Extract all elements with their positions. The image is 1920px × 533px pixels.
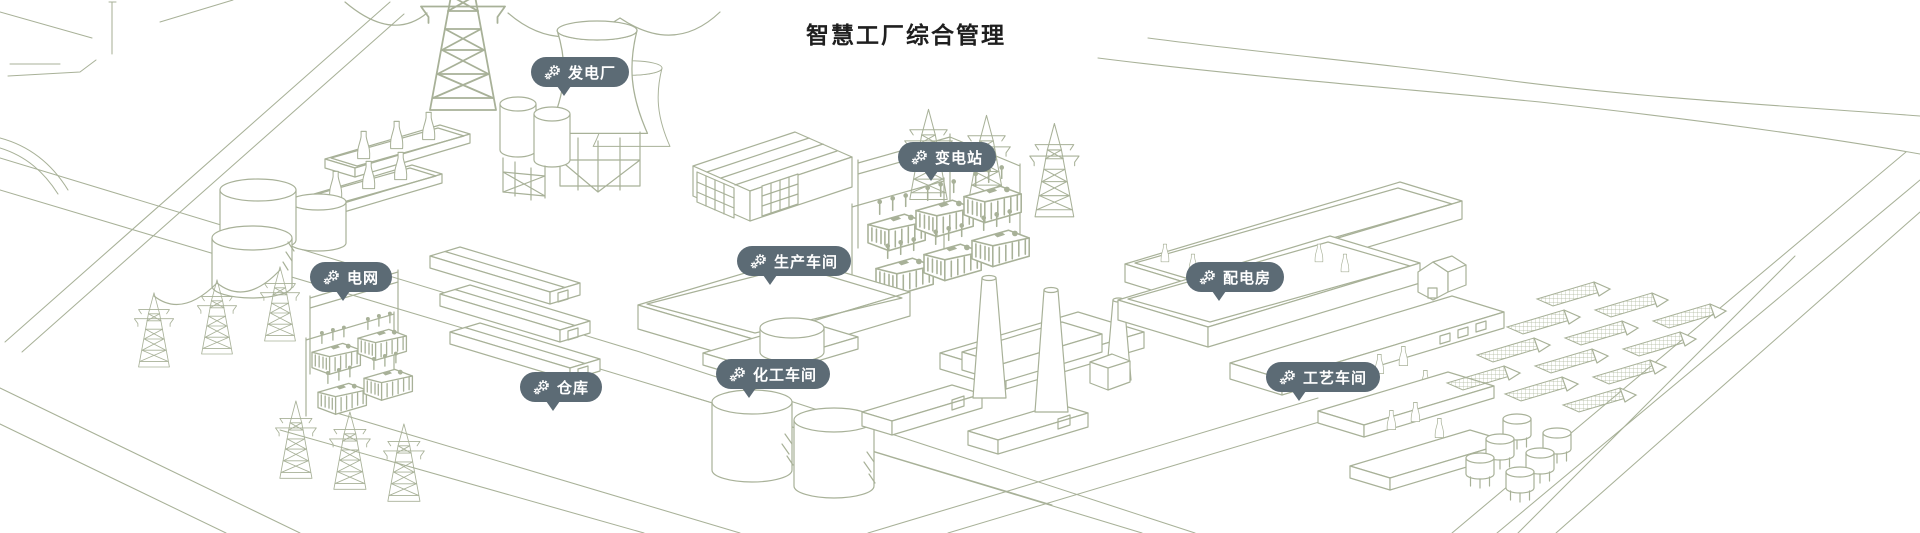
pin-substation[interactable]: 变电站	[898, 142, 996, 172]
gear-icon	[323, 269, 340, 286]
pin-label: 工艺车间	[1303, 367, 1367, 388]
pin-warehouse[interactable]: 仓库	[520, 372, 602, 402]
gear-icon	[911, 149, 928, 166]
gear-icon	[1199, 269, 1216, 286]
pin-process-workshop[interactable]: 工艺车间	[1266, 362, 1380, 392]
pin-label: 化工车间	[753, 364, 817, 385]
gear-icon	[1279, 369, 1296, 386]
page-title: 智慧工厂综合管理	[806, 16, 1006, 50]
pin-chemical-workshop[interactable]: 化工车间	[716, 359, 830, 389]
substation-yard	[852, 109, 1079, 294]
pin-distribution-room[interactable]: 配电房	[1186, 262, 1284, 292]
pin-label: 电网	[347, 267, 379, 288]
gear-icon	[750, 253, 767, 270]
right-complex	[1118, 182, 1510, 490]
pin-label: 配电房	[1223, 267, 1271, 288]
pin-label: 生产车间	[774, 251, 838, 272]
pin-production-workshop[interactable]: 生产车间	[737, 246, 851, 276]
gear-icon	[533, 379, 550, 396]
pin-label: 仓库	[557, 377, 589, 398]
pin-label: 发电厂	[568, 62, 616, 83]
gear-icon	[729, 366, 746, 383]
chemical-area	[703, 318, 875, 498]
sawtooth-factory	[693, 132, 852, 221]
pin-power-plant[interactable]: 发电厂	[531, 57, 629, 87]
factory-illustration	[0, 0, 1920, 533]
smart-factory-dashboard: 智慧工厂综合管理 发电厂 变电站 电网 生产车间 配电房 仓库 化工车间 工艺车…	[0, 0, 1920, 533]
pin-label: 变电站	[935, 147, 983, 168]
gear-icon	[544, 64, 561, 81]
warehouse-sheds	[430, 247, 600, 380]
footed-vessels	[1466, 414, 1571, 502]
pin-power-grid[interactable]: 电网	[310, 262, 392, 292]
